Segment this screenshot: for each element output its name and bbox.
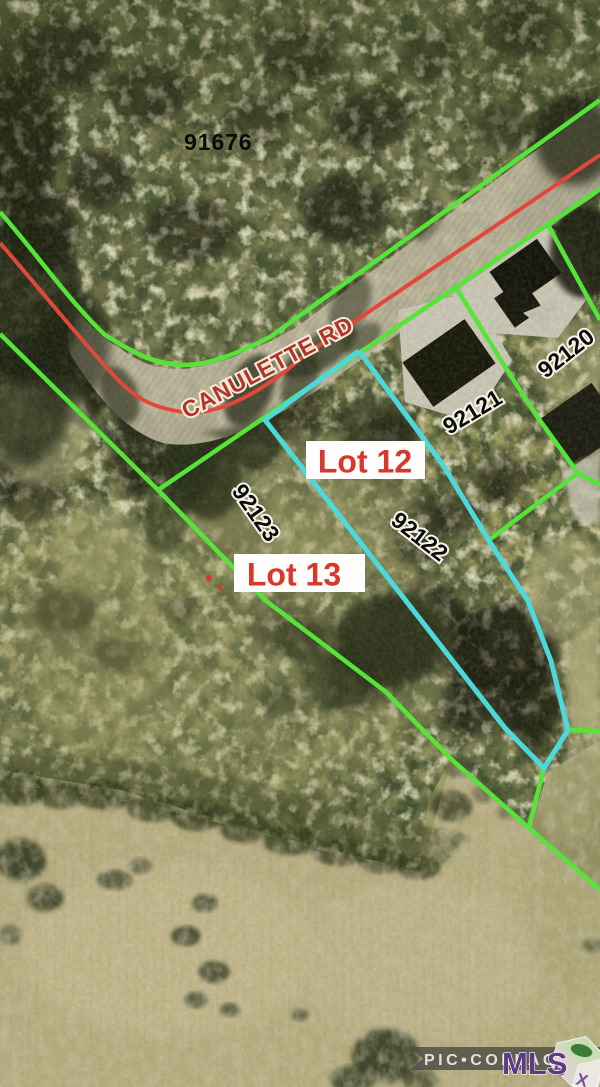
- svg-text:91676: 91676: [184, 129, 252, 155]
- svg-text:MLS: MLS: [502, 1046, 567, 1081]
- svg-text:Lot 13: Lot 13: [247, 557, 341, 593]
- svg-text:Lot 12: Lot 12: [318, 444, 412, 480]
